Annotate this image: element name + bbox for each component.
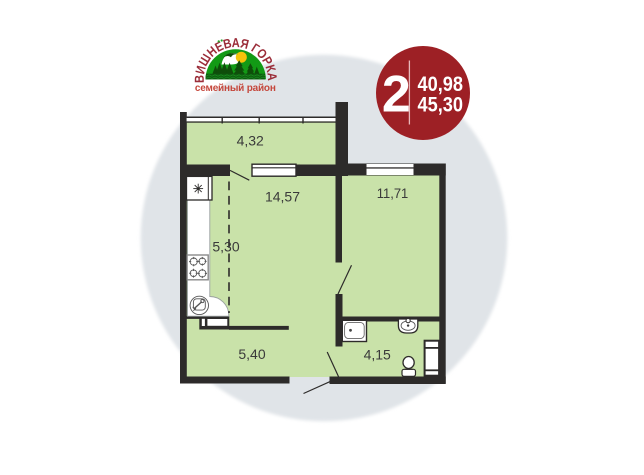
svg-text:5,30: 5,30 bbox=[212, 238, 239, 254]
svg-text:семейный район: семейный район bbox=[195, 83, 276, 94]
svg-text:2: 2 bbox=[382, 66, 411, 124]
svg-text:14,57: 14,57 bbox=[265, 189, 300, 205]
svg-text:11,71: 11,71 bbox=[377, 185, 409, 201]
svg-text:4,15: 4,15 bbox=[364, 346, 391, 362]
svg-text:45,30: 45,30 bbox=[418, 93, 464, 117]
svg-text:4,32: 4,32 bbox=[237, 132, 264, 148]
svg-text:5,40: 5,40 bbox=[238, 346, 265, 362]
